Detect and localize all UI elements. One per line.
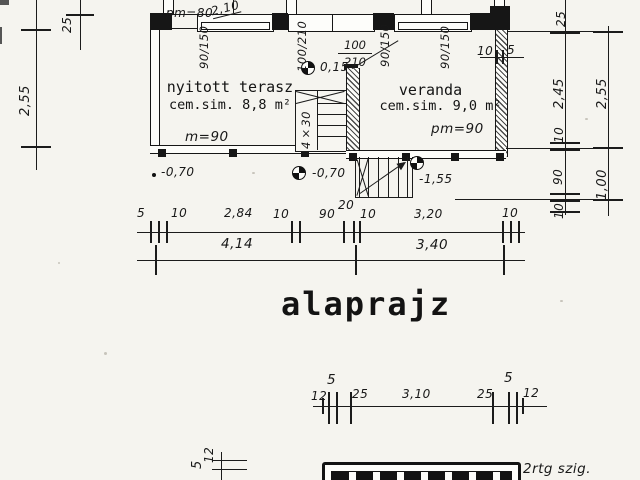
dim-tick	[502, 50, 504, 64]
ext-stair-edge	[359, 157, 360, 197]
wall-stub	[421, 0, 432, 14]
section-dim-line	[212, 469, 247, 470]
dim-tick	[518, 221, 520, 243]
section-dim-line	[221, 452, 222, 480]
stair-tread	[317, 114, 346, 115]
dim-tick	[353, 221, 355, 243]
dim-label: 10	[171, 206, 187, 220]
dim-label: 10	[273, 207, 289, 221]
paper-speck	[58, 262, 60, 264]
dim-label: 5	[137, 206, 145, 220]
terrace-post	[158, 149, 166, 157]
section-dim-line	[212, 460, 247, 461]
paper-speck	[585, 118, 588, 120]
elevation-label: -1,55	[419, 172, 453, 186]
dim-label: 10	[552, 195, 566, 219]
dim-tick	[522, 398, 524, 414]
dim-label: 90	[319, 207, 335, 221]
wall-face-line	[172, 28, 197, 29]
dim-label: 25	[60, 7, 74, 33]
wall-stub	[286, 0, 297, 14]
wall-corner-right-top	[490, 6, 510, 13]
wall-corner-right	[470, 13, 510, 30]
stair-label: 4×30	[299, 105, 313, 149]
dim-label: 1,00	[595, 156, 610, 200]
dim-label: 12	[523, 386, 539, 400]
dim-label: 12	[311, 389, 327, 403]
stair-tread	[317, 136, 346, 137]
window	[394, 14, 472, 32]
veranda-note: pm=90	[431, 121, 484, 137]
dim-label: 3,10	[402, 387, 431, 401]
elevation-label: -0,70	[161, 165, 195, 179]
dim-label: 25	[554, 1, 568, 27]
dim-line	[36, 0, 37, 170]
floor-plan-sheet: nyitott terasz cem.sim. 8,8 m² m=90 4×30…	[0, 0, 640, 480]
dim-tick	[355, 245, 357, 275]
dot-marker-icon	[152, 173, 156, 177]
parapet-note: pm=80	[166, 6, 213, 20]
dim-label: 10	[360, 207, 376, 221]
veranda-finish: cem.sim. 9,0 m²	[378, 98, 503, 114]
dim-tick	[21, 29, 51, 31]
dim-tick	[593, 31, 623, 33]
dim-label: 10	[552, 119, 566, 143]
ext-stair-riser	[368, 157, 369, 197]
door-size-den: 210	[338, 54, 372, 69]
ext-stair-riser	[388, 157, 389, 197]
dim-tick	[150, 221, 152, 243]
window-size-label: 90/150	[378, 25, 392, 67]
dim-chain-line	[137, 232, 525, 233]
dim-tick	[510, 221, 512, 243]
section-detail-frame	[322, 462, 521, 480]
door-size-label: 100/210	[295, 26, 309, 72]
drawing-title: alaprajz	[281, 285, 451, 323]
scan-smudge	[0, 0, 9, 5]
dim-line	[80, 0, 81, 50]
dim-tick	[593, 147, 623, 149]
benchmark-icon	[410, 156, 424, 170]
dim-chain-line	[313, 406, 547, 407]
window-sill	[398, 22, 468, 29]
ext-stair-riser	[378, 157, 379, 197]
paper-speck	[252, 172, 255, 174]
dim-label: 2,55	[595, 61, 610, 109]
door-size-num: 100	[338, 38, 372, 54]
dim-tick	[336, 392, 338, 424]
stair-tread	[317, 125, 346, 126]
ext-stair-edge	[355, 157, 356, 197]
dim-label: 12	[202, 439, 216, 463]
dim-tick	[550, 32, 580, 34]
dim-tick	[550, 149, 580, 151]
dim-label: 10	[502, 206, 518, 220]
dim-label: 4,14	[221, 236, 253, 252]
dim-label: 5	[327, 372, 336, 388]
dim-tick	[503, 245, 505, 275]
dim-tick	[155, 245, 157, 275]
dim-label: 3,20	[414, 207, 443, 221]
terrace-name: nyitott terasz	[165, 78, 295, 96]
terrace-note: m=90	[185, 129, 229, 145]
window-size-label: 90/150	[197, 27, 211, 69]
dim-tick	[299, 221, 301, 243]
detail-note: 2rtg szig.	[523, 461, 591, 477]
veranda-bottom-wall	[346, 150, 506, 159]
dim-label: 3,40	[416, 237, 448, 253]
dim-label: 5	[504, 370, 513, 386]
dim-tick	[496, 50, 498, 64]
veranda-name: veranda	[383, 81, 478, 99]
dim-label: 2,55	[18, 68, 33, 116]
dim-label: 90	[551, 157, 565, 185]
gap-dim-label: 10	[477, 44, 493, 58]
gap-dim-label: 5	[507, 43, 515, 57]
dim-tick	[516, 392, 518, 424]
veranda-post	[451, 153, 459, 161]
terrace-post	[229, 149, 237, 157]
dim-label: 2,45	[552, 61, 567, 109]
door-size-fraction: 100 210	[338, 38, 372, 69]
ext-stair-bottom	[355, 197, 413, 198]
terrace-left-wall	[150, 30, 160, 152]
terrace-finish: cem.sim. 8,8 m²	[161, 97, 299, 113]
insulation-hatch-band	[331, 471, 512, 480]
window-size-label: 90/150	[438, 27, 452, 69]
scan-streak	[0, 27, 2, 44]
veranda-post	[496, 153, 504, 161]
dim-chain-line	[137, 260, 525, 261]
mid-wall	[346, 68, 360, 152]
dim-tick	[502, 221, 504, 243]
dim-tick	[166, 221, 168, 243]
paper-speck	[104, 352, 107, 355]
window-sill	[201, 22, 270, 29]
paper-speck	[560, 300, 563, 302]
dim-label: 25	[477, 387, 493, 401]
dim-tick	[508, 392, 510, 424]
door-opening	[332, 14, 375, 32]
dim-tick	[158, 221, 160, 243]
elevation-label: -0,70	[312, 166, 346, 180]
benchmark-icon	[292, 166, 306, 180]
dim-label: 25	[352, 387, 368, 401]
dim-label: 20	[338, 198, 354, 212]
dim-tick	[21, 146, 51, 148]
dim-tick	[343, 221, 345, 243]
dim-label: 2,84	[224, 206, 253, 220]
dim-tick	[328, 392, 330, 424]
dim-tick	[359, 221, 361, 243]
wall-pier	[272, 13, 288, 30]
dim-tick	[291, 221, 293, 243]
